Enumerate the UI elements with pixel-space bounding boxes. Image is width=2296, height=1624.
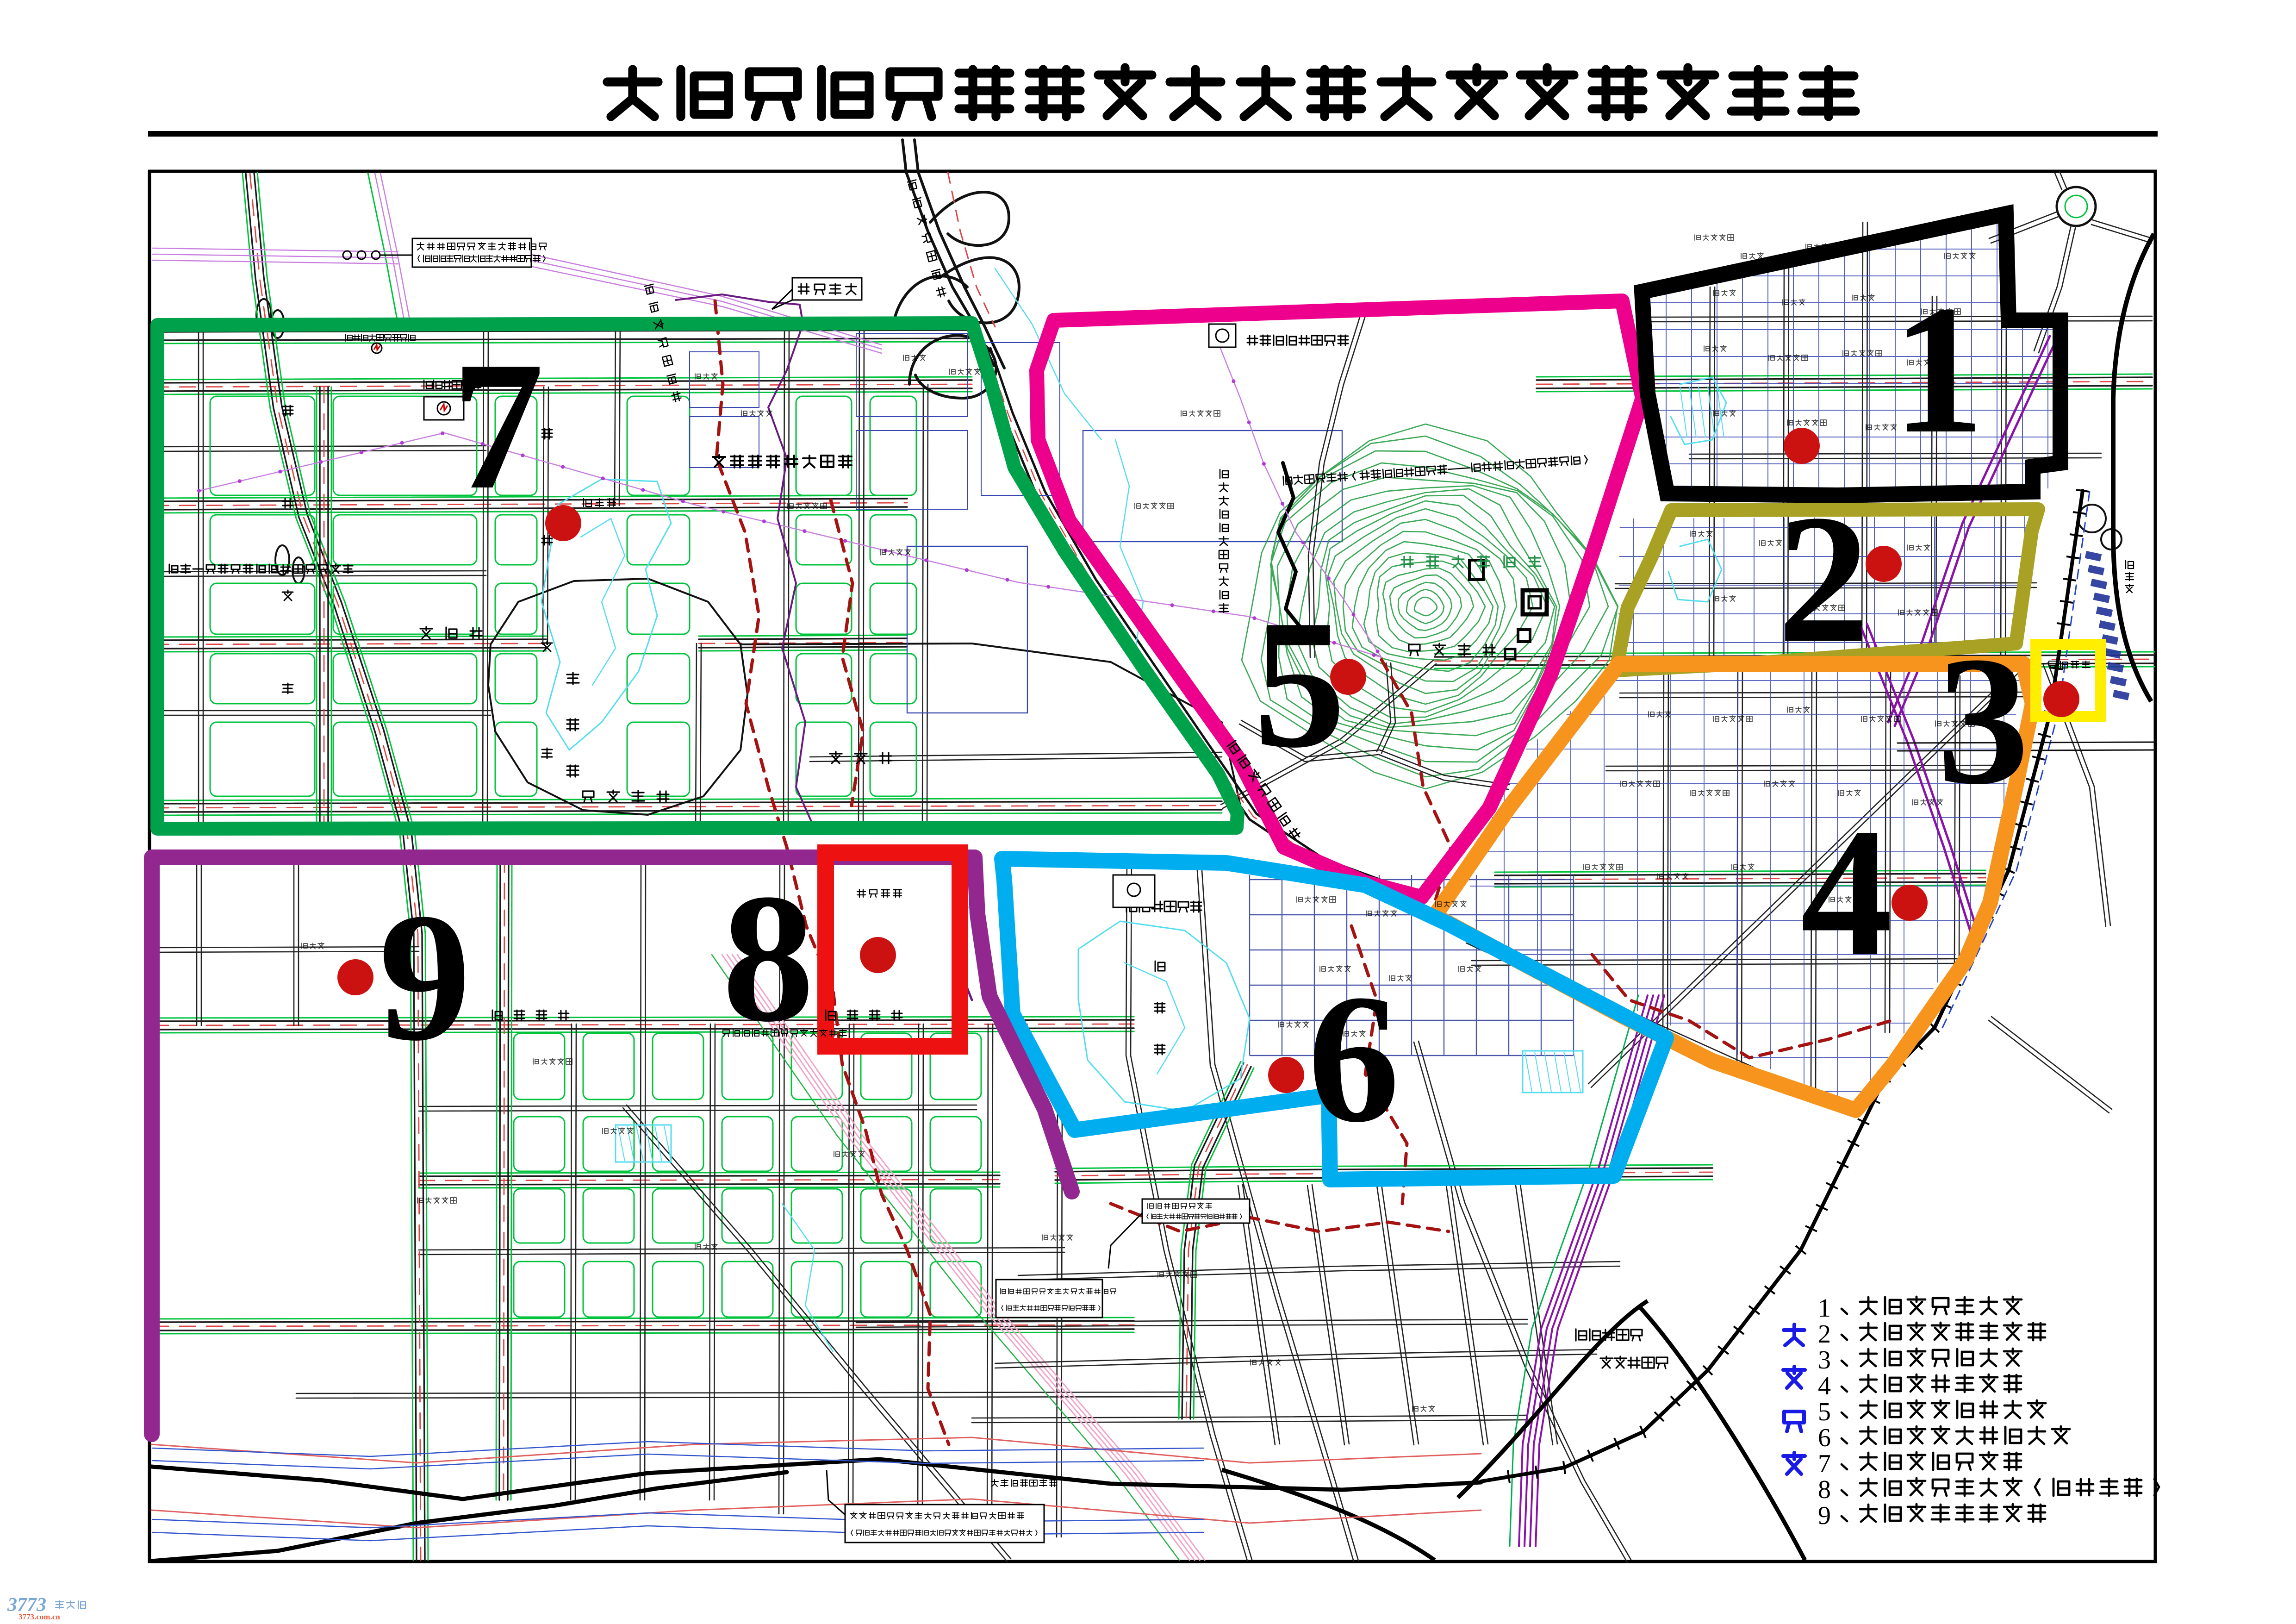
svg-text:4: 4	[1818, 1372, 1831, 1400]
svg-text:3773.com.cn: 3773.com.cn	[19, 1612, 60, 1621]
svg-text:4: 4	[1801, 790, 1893, 994]
svg-text:5: 5	[1818, 1398, 1831, 1426]
svg-text:9: 9	[1818, 1501, 1831, 1530]
svg-text:7: 7	[1818, 1449, 1831, 1478]
svg-text:8: 8	[722, 856, 815, 1060]
svg-text:9: 9	[379, 875, 471, 1079]
svg-text:1: 1	[1892, 268, 1985, 472]
svg-text:3: 3	[1818, 1346, 1831, 1374]
svg-text:6: 6	[1818, 1424, 1831, 1452]
svg-text:6: 6	[1308, 956, 1400, 1161]
svg-text:3: 3	[1937, 618, 2029, 823]
svg-text:7: 7	[452, 324, 544, 528]
svg-text:1: 1	[1818, 1294, 1831, 1323]
svg-text:8: 8	[1818, 1475, 1831, 1504]
svg-text:2: 2	[1778, 477, 1870, 681]
svg-text:2: 2	[1818, 1320, 1831, 1349]
